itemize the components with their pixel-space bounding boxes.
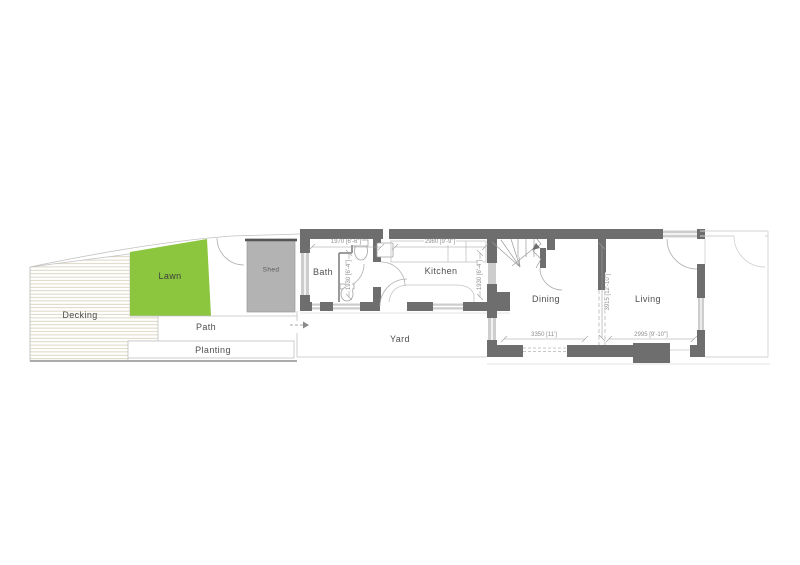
yard-entry-arrow-head-icon xyxy=(303,322,309,329)
garden xyxy=(30,234,487,361)
dim-living-width: 2995 [9'-10"] xyxy=(633,332,669,338)
dining-window-dashed xyxy=(523,348,567,352)
dim-bath-depth: 1930 [6'-4"] xyxy=(346,259,352,291)
shed-area xyxy=(247,239,295,312)
planting-bed xyxy=(128,341,294,358)
staircase xyxy=(492,239,541,268)
bay-chimney-block xyxy=(633,343,670,363)
dim-dining-width: 3350 [11'] xyxy=(530,332,558,338)
kitchen-counter-curve xyxy=(389,285,474,302)
lawn-area xyxy=(130,239,211,316)
floor-plan-canvas: Decking Lawn Shed Path Planting Bath Kit… xyxy=(0,0,800,565)
dim-kitchen-width: 2980 [9'-9"] xyxy=(424,239,456,245)
neighbour-door-arc xyxy=(734,236,765,267)
door-swings xyxy=(340,239,697,306)
dim-kitchen-depth: 1930 [6'-4"] xyxy=(477,259,483,291)
stairs-arrow-icon xyxy=(532,243,540,250)
dim-dining-depth: 3915 [12'-10"] xyxy=(605,273,611,312)
dim-bath-width: 1970 [6'-6"] xyxy=(330,239,362,245)
plan-linework xyxy=(0,0,800,565)
garden-gate-arc xyxy=(217,238,244,265)
back-door-arc2 xyxy=(380,279,407,306)
neighbour-outline xyxy=(487,231,770,364)
stairs-door-arc xyxy=(540,268,562,290)
stairs-direction-line xyxy=(512,248,534,266)
yard-side-boundary xyxy=(297,311,487,357)
fixtures xyxy=(339,239,486,302)
living-door-arc xyxy=(667,239,697,269)
